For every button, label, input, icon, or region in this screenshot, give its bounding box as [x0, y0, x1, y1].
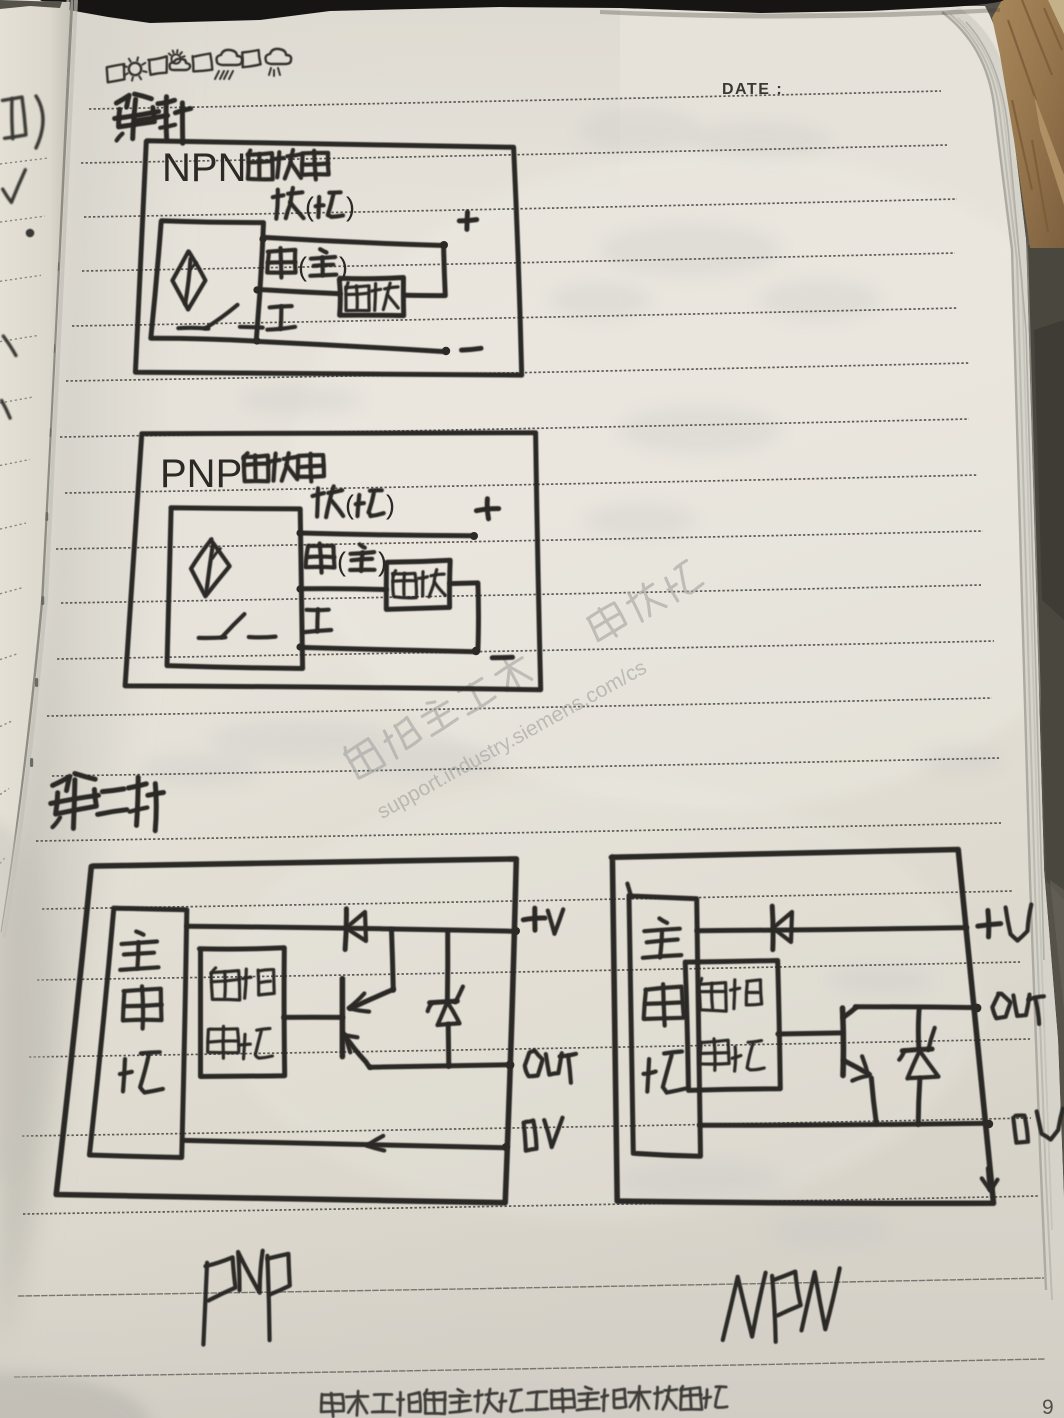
svg-text:NPN: NPN [162, 146, 246, 190]
svg-text:): ) [386, 490, 395, 520]
svg-text:9: 9 [1042, 1396, 1054, 1418]
svg-text:): ) [339, 252, 348, 282]
svg-text:(: ( [337, 547, 346, 577]
svg-text:(: ( [305, 192, 314, 222]
svg-text:DATE :: DATE : [722, 81, 783, 98]
svg-text:): ) [346, 192, 355, 222]
svg-text:(: ( [298, 252, 307, 282]
svg-text:(: ( [345, 490, 354, 520]
svg-text:PNP: PNP [160, 452, 242, 496]
